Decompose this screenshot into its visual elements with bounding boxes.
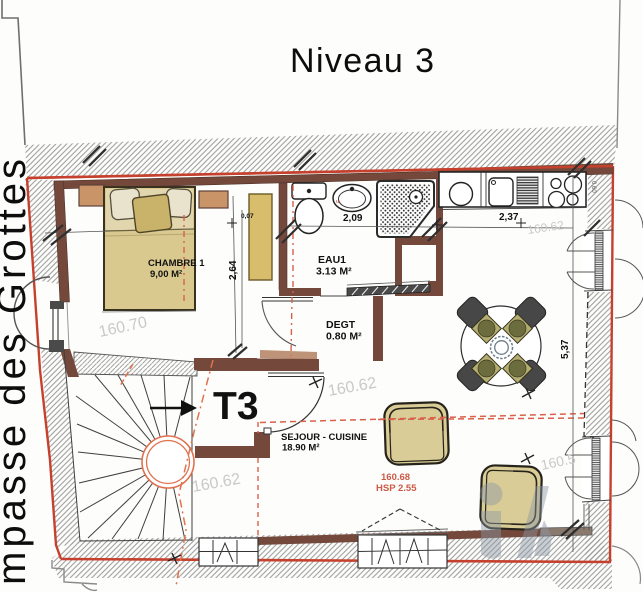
svg-text:3.13 M²: 3.13 M²	[316, 266, 352, 278]
svg-text:HSP 2.55: HSP 2.55	[376, 483, 417, 494]
svg-text:0,60: 0,60	[590, 181, 596, 193]
svg-text:5,37: 5,37	[560, 339, 571, 359]
svg-text:2,37: 2,37	[499, 212, 519, 223]
svg-text:Impasse des Grottes: Impasse des Grottes	[0, 155, 34, 592]
svg-text:Niveau 3: Niveau 3	[290, 42, 435, 80]
svg-text:0.80 M²: 0.80 M²	[326, 331, 362, 343]
svg-text:DEGT: DEGT	[326, 319, 356, 331]
svg-text:2,64: 2,64	[228, 260, 239, 280]
svg-text:160.68: 160.68	[381, 472, 410, 483]
svg-text:0,07: 0,07	[241, 213, 254, 220]
svg-text:SEJOUR - CUISINE: SEJOUR - CUISINE	[281, 432, 367, 443]
svg-text:T3: T3	[213, 385, 259, 428]
svg-text:u: u	[336, 199, 339, 205]
svg-text:EAU1: EAU1	[318, 254, 346, 266]
svg-text:18.90 M²: 18.90 M²	[282, 443, 320, 454]
svg-text:2,09: 2,09	[343, 213, 363, 224]
svg-text:9,00 M²: 9,00 M²	[150, 269, 182, 280]
svg-text:CHAMBRE 1: CHAMBRE 1	[148, 258, 205, 269]
